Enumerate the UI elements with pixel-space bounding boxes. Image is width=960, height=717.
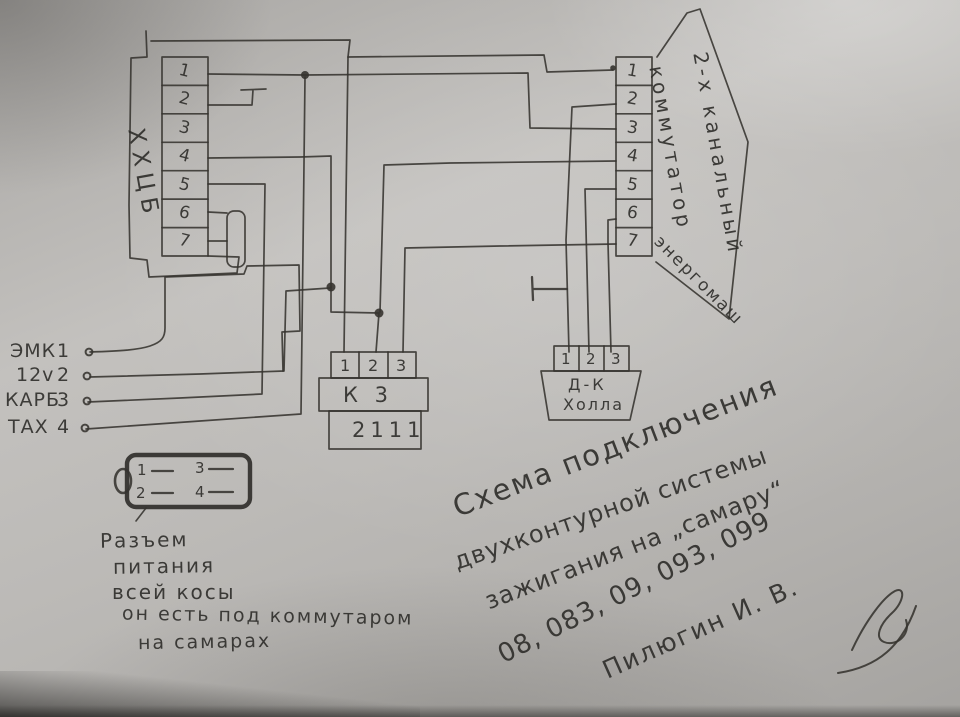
note-line-2: питания bbox=[113, 553, 215, 579]
k3-pin-2: 2 bbox=[368, 356, 378, 375]
power-pin-2: 2 bbox=[136, 484, 146, 502]
terminal-emk-label: ЭМК bbox=[10, 340, 56, 362]
wire-down-to-K3-pin1 bbox=[344, 57, 348, 352]
wire-karb-to-L5 bbox=[88, 184, 265, 402]
k3-pin-1: 1 bbox=[340, 356, 350, 375]
note-line-1: Разъем bbox=[100, 527, 189, 553]
hall-name-line1: Д-К bbox=[568, 375, 607, 394]
power-pin-1: 1 bbox=[137, 461, 147, 479]
wire-L2-stub bbox=[208, 89, 266, 105]
terminal-karb-label: КАРБ bbox=[5, 389, 60, 411]
k3-model: 2111 bbox=[352, 418, 425, 442]
power-pin-3: 3 bbox=[195, 459, 205, 477]
hall-pin-3: 3 bbox=[611, 350, 621, 368]
wire-L1-to-C3 bbox=[208, 73, 616, 129]
wires bbox=[86, 40, 616, 429]
wire-emk bbox=[90, 265, 300, 371]
wire-C4-to-junction bbox=[380, 161, 616, 312]
power-pin-4: 4 bbox=[195, 483, 205, 501]
terminal-12v-num: 2 bbox=[57, 364, 70, 386]
wire-C6-bridge bbox=[608, 219, 616, 352]
wire-K3pin3-to-C7 bbox=[403, 244, 616, 352]
wire-junction-bridge bbox=[331, 287, 379, 352]
signature-flourish bbox=[838, 590, 916, 673]
hall-pin-1: 1 bbox=[561, 350, 571, 368]
terminal-12v-label: 12v bbox=[16, 364, 54, 386]
terminal-circles bbox=[82, 349, 93, 432]
hand-drawn-wiring-diagram-photo: ХХЦБ 1 2 3 4 5 6 7 1 2 3 4 5 6 7 2-х кан… bbox=[0, 0, 960, 717]
wire-12v bbox=[90, 288, 330, 377]
k3-pin-3: 3 bbox=[396, 356, 406, 375]
ground-symbol-hall bbox=[532, 277, 567, 300]
note-line-3: всей косы bbox=[112, 580, 236, 604]
terminal-emk-num: 1 bbox=[57, 340, 70, 362]
hall-name-line2: Холла bbox=[563, 395, 624, 414]
note-line-5: на самарах bbox=[138, 630, 271, 654]
hall-pin-2: 2 bbox=[586, 350, 596, 368]
terminal-tah-num: 4 bbox=[57, 416, 70, 438]
terminal-karb-num: 3 bbox=[57, 389, 70, 411]
terminal-tah-label: ТАХ bbox=[8, 416, 49, 438]
photo-shadow-bottom-edge bbox=[0, 705, 960, 717]
wire-shell-top-to-C1 bbox=[151, 40, 613, 72]
wire-C5-to-hall2 bbox=[585, 189, 616, 352]
k3-name: К 3 bbox=[343, 383, 393, 407]
